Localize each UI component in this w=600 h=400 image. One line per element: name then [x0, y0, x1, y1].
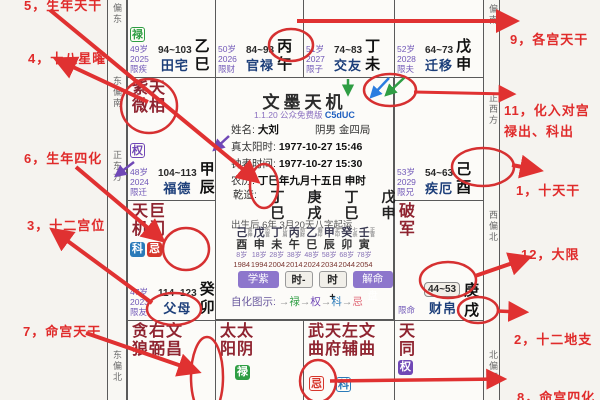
luck-pillar-column: 壬正官寅78岁2054: [356, 227, 374, 269]
palace-stem: 丁: [365, 38, 380, 56]
palace-info: 52岁2028限夫 64~73迁移 戊申: [397, 38, 471, 74]
ji-badge: 忌: [309, 376, 324, 391]
palace-branch: 酉: [456, 179, 471, 197]
interpret-chart-button[interactable]: 解命盘: [353, 271, 394, 288]
star-names: 天巨机门: [132, 203, 166, 239]
palace-name: 迁移: [425, 57, 453, 74]
palace-cell-caibo[interactable]: 破军 44~53 庚 限命 财帛 戌: [394, 200, 484, 321]
palace-branch: 辰: [200, 179, 215, 197]
compass-label-east1: 偏东: [111, 3, 124, 25]
palace-cell-tianzhai[interactable]: 禄 49岁2025限疾 94~103田宅 乙巳: [127, 0, 216, 78]
palace-branch: 午: [277, 56, 292, 74]
palace-name: 疾厄: [425, 180, 453, 197]
luck-pillar-column: 丁比肩未28岁2004: [268, 227, 286, 269]
palace-stem: 癸: [200, 281, 215, 299]
palace-branch: 巳: [195, 56, 210, 74]
compass-label-east2: 东偏南: [111, 76, 124, 109]
annotation-label-8: 8，命宫四化: [517, 387, 595, 400]
palace-name: 官禄: [246, 57, 274, 74]
compass-label-west3: 西偏北: [487, 210, 500, 243]
ji-badge: 忌: [147, 242, 162, 257]
luck-pillars: 己食神酉8岁1984 戊伤官申18岁1994 丁比肩未28岁2004 丙劫财午3…: [233, 227, 373, 269]
clock-time-row: 钟表时间: 1977-10-27 15:30: [231, 156, 362, 171]
annotation-label-3: 3，十二宫位: [27, 215, 105, 234]
compass-label-east4: 东偏北: [111, 350, 124, 383]
palace-stem: 庚: [464, 279, 479, 300]
palace-stem: 乙: [195, 38, 210, 56]
luck-pillar-column: 己食神酉8岁1984: [233, 227, 251, 269]
palace-info: 51岁2027限子 74~83交友 丁未: [306, 38, 380, 74]
quan-badge: 权: [130, 143, 145, 158]
star-names: 武天左文曲府辅曲: [308, 323, 376, 359]
current-decade-range: 44~53: [424, 282, 460, 297]
palace-branch: 未: [365, 56, 380, 74]
self-transform-legend: 自化图示: →禄→权→科→忌: [231, 294, 363, 309]
palace-stem: 戊: [456, 38, 471, 56]
annotation-label-6: 6，生年四化: [24, 148, 102, 167]
annotation-label-11: 11，化入对宫禄出、科出: [504, 100, 590, 140]
study-ziwei-button[interactable]: 学紫微: [238, 271, 279, 288]
palace-cell-jiaoyou[interactable]: 51岁2027限子 74~83交友 丁未: [303, 0, 395, 78]
arrow-ji-to-label1: [512, 165, 538, 170]
annotation-label-7: 7，命宫天干: [23, 321, 101, 340]
luck-pillar-column: 乙偏印巳48岁2024: [303, 227, 321, 269]
left-compass-strip: [107, 0, 127, 400]
palace-name: 财帛: [429, 300, 457, 318]
name-row: 姓名: 大刘: [231, 122, 279, 137]
star-names: 太太阳阴: [220, 323, 254, 359]
ke-badge: 科: [130, 242, 145, 257]
annotation-label-4: 4，十八星曜: [28, 48, 106, 67]
palace-branch: 卯: [200, 299, 215, 317]
palace-info: 48岁2024限迁 104~113福德 甲辰: [130, 161, 215, 197]
star-names: 紫天微相: [132, 80, 166, 116]
palace-cell-hai[interactable]: 天同 权: [394, 320, 484, 400]
palace-stem: 甲: [200, 161, 215, 179]
star-names: 贪右文狼弼昌: [132, 323, 183, 359]
center-info-panel: 文墨天机 1.1.20 公众免费版 C5dUC 姓名: 大刘 阴男 金四局 真太…: [215, 77, 394, 320]
luck-pillar-column: 癸七杀卯68岁2044: [338, 227, 356, 269]
app-version: 1.1.20 公众免费版 C5dUC: [216, 109, 393, 121]
palace-cell-jie[interactable]: 53岁2029限兄 54~63疾厄 己酉: [394, 77, 484, 201]
luck-pillar-column: 丙劫财午38岁2014: [286, 227, 304, 269]
palace-info: 50岁2026限财 84~93官禄 丙午: [218, 38, 292, 74]
annotation-label-12: 12，大限: [521, 244, 579, 263]
annotation-label-5: 5，生年天干: [24, 0, 102, 14]
palace-branch: 戌: [464, 299, 479, 320]
compass-label-west4: 北偏西: [487, 350, 500, 383]
lu-badge: 禄: [235, 365, 250, 380]
hour-plus-button[interactable]: 时+: [319, 271, 347, 288]
arrow-xu-to-label2: [497, 311, 524, 312]
quan-badge: 权: [398, 360, 413, 375]
palace-cell-zi[interactable]: 武天左文曲府辅曲 忌 科: [303, 320, 395, 400]
annotation-label-1: 1，十天干: [516, 180, 580, 199]
palace-name: 福德: [158, 180, 197, 197]
luck-pillar-column: 戊伤官申18岁1994: [251, 227, 269, 269]
solar-time-row: 真太阳时: 1977-10-27 15:46: [231, 139, 362, 154]
lunar-date-row: 农历: 丁巳年九月十五日 申时: [231, 173, 366, 188]
palace-cell-qianyi[interactable]: 52岁2028限夫 64~73迁移 戊申: [394, 0, 484, 78]
annotation-label-2: 2，十二地支: [514, 329, 592, 348]
gender-bureau: 阴男 金四局: [315, 122, 370, 137]
right-compass-strip: [483, 0, 500, 400]
palace-branch: 申: [456, 56, 471, 74]
palace-cell-chou[interactable]: 太太阳阴 禄: [215, 320, 304, 400]
palace-cell-ming[interactable]: 贪右文狼弼昌: [127, 320, 216, 400]
app-code: C5dUC: [325, 110, 355, 120]
hour-minus-button[interactable]: 时-: [285, 271, 313, 288]
compass-label-west1: 偏南: [487, 4, 500, 26]
ke-badge: 科: [336, 377, 351, 392]
luck-pillar-column: 甲正印辰58岁2034: [321, 227, 339, 269]
palace-info: 53岁2029限兄 54~63疾厄 己酉: [397, 161, 471, 197]
palace-name: 父母: [158, 300, 197, 317]
palace-cell-guanlu[interactable]: 50岁2026限财 84~93官禄 丙午: [215, 0, 304, 78]
palace-stem: 丙: [277, 38, 292, 56]
star-names: 天同: [399, 323, 416, 359]
compass-label-east3: 正东方: [111, 150, 124, 183]
palace-cell-fude[interactable]: 紫天微相 权 48岁2024限迁 104~113福德 甲辰: [127, 77, 216, 201]
palace-stem: 己: [456, 161, 471, 179]
palace-info: 47岁2023限友 114~123父母 癸卯: [130, 281, 215, 317]
palace-name: 交友: [334, 57, 362, 74]
palace-info: 49岁2025限疾 94~103田宅 乙巳: [130, 38, 210, 74]
ziwei-chart-screenshot: 偏东 东偏南 正东方 东偏北 偏南 正西方 西偏北 北偏西 禄 49岁2025限…: [0, 0, 600, 400]
annotation-label-9: 9，各宫天干: [510, 29, 588, 48]
palace-name: 田宅: [158, 57, 192, 74]
compass-label-west2: 正西方: [487, 93, 500, 126]
palace-cell-fumu[interactable]: 天巨机门 科 忌 47岁2023限友 114~123父母 癸卯: [127, 200, 216, 321]
limit-label: 限命: [398, 304, 415, 316]
